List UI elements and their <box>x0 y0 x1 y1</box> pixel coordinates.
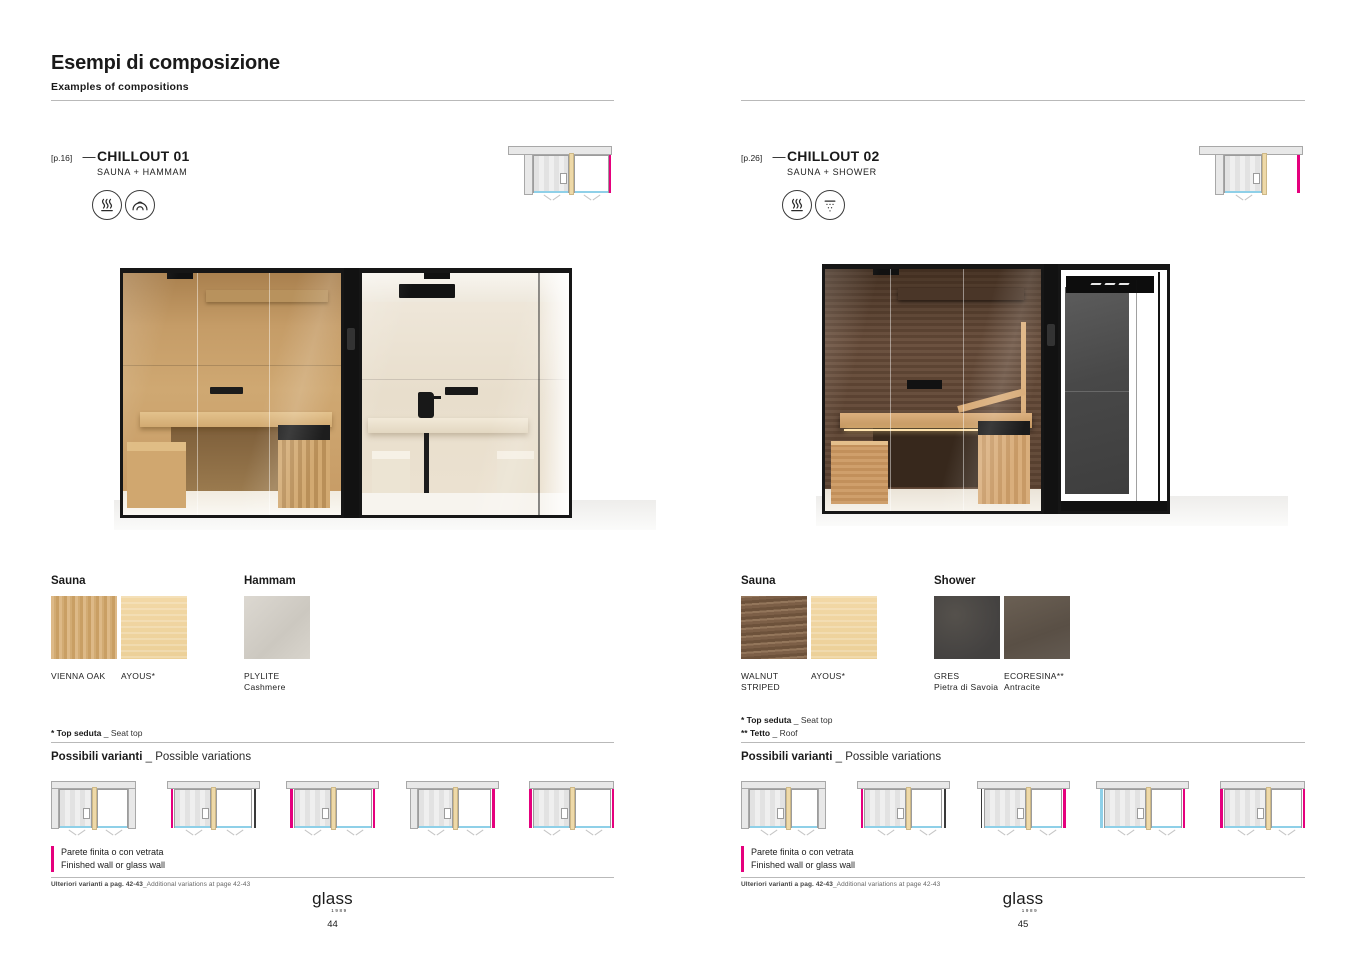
product-type: SAUNA + HAMMAM <box>97 167 187 177</box>
feature-icons <box>782 190 845 220</box>
catalog-page-44: Esempi di composizione Examples of compo… <box>51 0 614 958</box>
more-variants-note: Ulteriori varianti a pag. 42-43_Addition… <box>51 881 250 888</box>
variant-floorplan <box>1100 781 1185 837</box>
variant-floorplan <box>51 781 136 837</box>
divider-line <box>51 877 614 878</box>
feature-icons <box>92 190 155 220</box>
swatch-ayous <box>811 596 877 659</box>
footnote-line: ** Tetto _ Roof <box>741 727 833 740</box>
legend-line-it: Parete finita o con vetrata <box>751 846 855 859</box>
sauna-cabin <box>120 268 344 518</box>
catalog-page-45: [p.26] — CHILLOUT 02 SAUNA + SHOWER <box>741 0 1305 958</box>
variant-floorplan <box>741 781 826 837</box>
swatch-walnut <box>741 596 807 659</box>
legend-line-it: Parete finita o con vetrata <box>61 846 165 859</box>
variant-floorplan <box>981 781 1066 837</box>
variant-floorplans <box>741 781 1305 837</box>
legend-line-en: Finished wall or glass wall <box>751 859 855 872</box>
variant-floorplan <box>290 781 375 837</box>
variant-floorplan <box>1220 781 1305 837</box>
page-subtitle: Examples of compositions <box>51 81 189 93</box>
dash: — <box>81 149 97 164</box>
variant-floorplan <box>171 781 256 837</box>
swatch-ayous <box>121 596 187 659</box>
variant-floorplans <box>51 781 614 837</box>
material-group: HammamPLYLITECashmere <box>244 575 310 694</box>
swatch-plylite <box>244 596 310 659</box>
center-frame-post <box>1044 264 1058 514</box>
more-variants-note: Ulteriori varianti a pag. 42-43_Addition… <box>741 881 940 888</box>
material-swatch: VIENNA OAK <box>51 596 117 682</box>
control-panel <box>347 328 355 350</box>
product-page-ref: [p.16] <box>51 153 81 163</box>
sauna-icon <box>782 190 812 220</box>
control-panel <box>1047 324 1055 346</box>
footnotes: * Top seduta _ Seat top <box>51 698 143 740</box>
brand-year: 1989 <box>755 908 1305 913</box>
material-group: ShowerGRESPietra di SavoiaECORESINA**Ant… <box>934 575 1070 694</box>
material-swatch: AYOUS* <box>121 596 187 682</box>
legend-magenta-bar <box>741 846 744 872</box>
material-group-title: Sauna <box>51 575 187 587</box>
divider-line <box>51 100 614 101</box>
material-group-title: Sauna <box>741 575 877 587</box>
swatch-label: PLYLITECashmere <box>244 671 310 694</box>
variants-heading: Possibili varianti _ Possible variations <box>51 751 251 763</box>
legend-line-en: Finished wall or glass wall <box>61 859 165 872</box>
divider-line <box>741 742 1305 743</box>
footnote-line: * Top seduta _ Seat top <box>51 727 143 740</box>
brand-logo: glass <box>741 889 1305 909</box>
product-name: CHILLOUT 02 <box>787 148 879 164</box>
page-number: 44 <box>51 919 614 930</box>
product-header: [p.16] — CHILLOUT 01 <box>51 148 189 164</box>
legend: Parete finita o con vetrata Finished wal… <box>741 846 855 872</box>
sauna-icon <box>92 190 122 220</box>
swatch-label: WALNUTSTRIPED <box>741 671 807 694</box>
product-name: CHILLOUT 01 <box>97 148 189 164</box>
shower-cabin <box>1058 264 1170 514</box>
swatch-ecoresina <box>1004 596 1070 659</box>
divider-line <box>51 742 614 743</box>
footer: glass 1989 45 <box>741 889 1305 930</box>
swatch-gres <box>934 596 1000 659</box>
legend: Parete finita o con vetrata Finished wal… <box>51 846 165 872</box>
product-header: [p.26] — CHILLOUT 02 <box>741 148 879 164</box>
variants-heading: Possibili varianti _ Possible variations <box>741 751 941 763</box>
hammam-icon <box>125 190 155 220</box>
brand-logo: glass <box>51 889 614 909</box>
material-group: SaunaWALNUTSTRIPEDAYOUS* <box>741 575 877 694</box>
swatch-label: ECORESINA**Antracite <box>1004 671 1070 694</box>
material-group: SaunaVIENNA OAKAYOUS* <box>51 575 187 682</box>
footnotes: * Top seduta _ Seat top** Tetto _ Roof <box>741 698 833 740</box>
swatch-vienna-oak <box>51 596 117 659</box>
page-number: 45 <box>741 919 1305 930</box>
materials-section: SaunaVIENNA OAKAYOUS*HammamPLYLITECashme… <box>51 575 614 705</box>
material-group-title: Hammam <box>244 575 310 587</box>
brand-year: 1989 <box>65 908 614 913</box>
material-swatch: AYOUS* <box>811 596 877 694</box>
variant-floorplan <box>529 781 614 837</box>
materials-section: SaunaWALNUTSTRIPEDAYOUS*ShowerGRESPietra… <box>741 575 1305 705</box>
hammam-cabin <box>359 268 572 518</box>
legend-magenta-bar <box>51 846 54 872</box>
product-type: SAUNA + SHOWER <box>787 167 877 177</box>
product-photo-chillout-02 <box>822 264 1170 522</box>
center-frame-post <box>344 268 359 518</box>
product-page-ref: [p.26] <box>741 153 771 163</box>
overview-floorplan <box>1215 146 1303 200</box>
material-swatch: GRESPietra di Savoia <box>934 596 1000 694</box>
dash: — <box>771 149 787 164</box>
material-swatch: WALNUTSTRIPED <box>741 596 807 694</box>
material-swatch: PLYLITECashmere <box>244 596 310 694</box>
material-swatch: ECORESINA**Antracite <box>1004 596 1070 694</box>
swatch-label: VIENNA OAK <box>51 671 117 682</box>
shower-icon <box>815 190 845 220</box>
divider-line <box>741 877 1305 878</box>
variant-floorplan <box>861 781 946 837</box>
sauna-cabin <box>822 264 1044 514</box>
product-photo-chillout-01 <box>120 268 572 526</box>
page-title: Esempi di composizione <box>51 52 280 75</box>
swatch-label: AYOUS* <box>121 671 187 682</box>
footnote-line: * Top seduta _ Seat top <box>741 714 833 727</box>
overview-floorplan <box>524 146 612 200</box>
variant-floorplan <box>410 781 495 837</box>
footer: glass 1989 44 <box>51 889 614 930</box>
swatch-label: AYOUS* <box>811 671 877 682</box>
shower-head-panel <box>1066 276 1154 293</box>
swatch-label: GRESPietra di Savoia <box>934 671 1000 694</box>
divider-line <box>741 100 1305 101</box>
material-group-title: Shower <box>934 575 1070 587</box>
